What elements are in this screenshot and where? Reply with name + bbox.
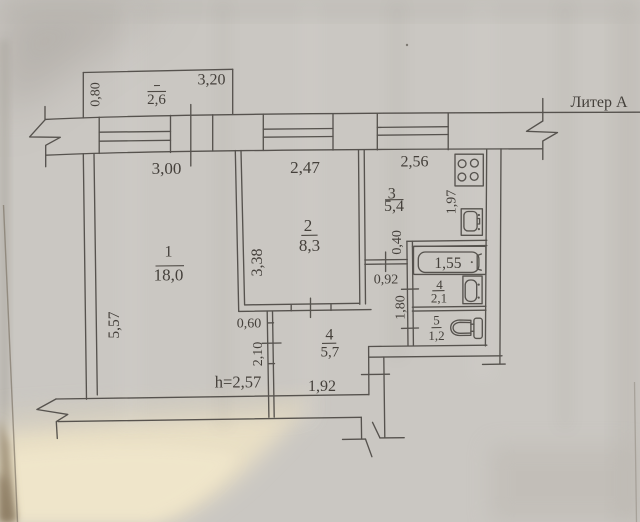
- svg-text:2,56: 2,56: [401, 153, 429, 170]
- svg-text:1,2: 1,2: [428, 328, 444, 343]
- svg-text:5: 5: [433, 313, 440, 328]
- svg-text:3,38: 3,38: [249, 249, 266, 277]
- svg-text:5,7: 5,7: [321, 344, 340, 360]
- svg-text:1,55: 1,55: [434, 255, 461, 272]
- svg-text:8,3: 8,3: [299, 236, 320, 255]
- svg-text:h=2,57: h=2,57: [215, 373, 261, 392]
- svg-text:2,6: 2,6: [147, 92, 166, 108]
- svg-text:2,47: 2,47: [290, 158, 320, 177]
- svg-text:0,40: 0,40: [390, 230, 405, 255]
- svg-text:1,97: 1,97: [445, 190, 460, 215]
- svg-text:2: 2: [304, 216, 313, 235]
- svg-text:2,10: 2,10: [251, 342, 266, 367]
- svg-text:1: 1: [165, 244, 173, 261]
- svg-text:2,1: 2,1: [431, 290, 447, 305]
- svg-text:1,80: 1,80: [394, 295, 409, 320]
- svg-text:3,20: 3,20: [198, 71, 226, 88]
- svg-text:18,0: 18,0: [154, 265, 184, 284]
- svg-text:1,92: 1,92: [308, 378, 336, 395]
- svg-text:Литер А: Литер А: [570, 94, 628, 111]
- svg-text:0,92: 0,92: [374, 273, 399, 288]
- svg-text:0,60: 0,60: [237, 316, 262, 331]
- svg-text:5,57: 5,57: [106, 311, 123, 338]
- svg-text:3,00: 3,00: [152, 159, 182, 178]
- svg-text:0,80: 0,80: [89, 82, 104, 107]
- svg-text:4: 4: [325, 327, 333, 344]
- svg-text:5,4: 5,4: [384, 198, 404, 215]
